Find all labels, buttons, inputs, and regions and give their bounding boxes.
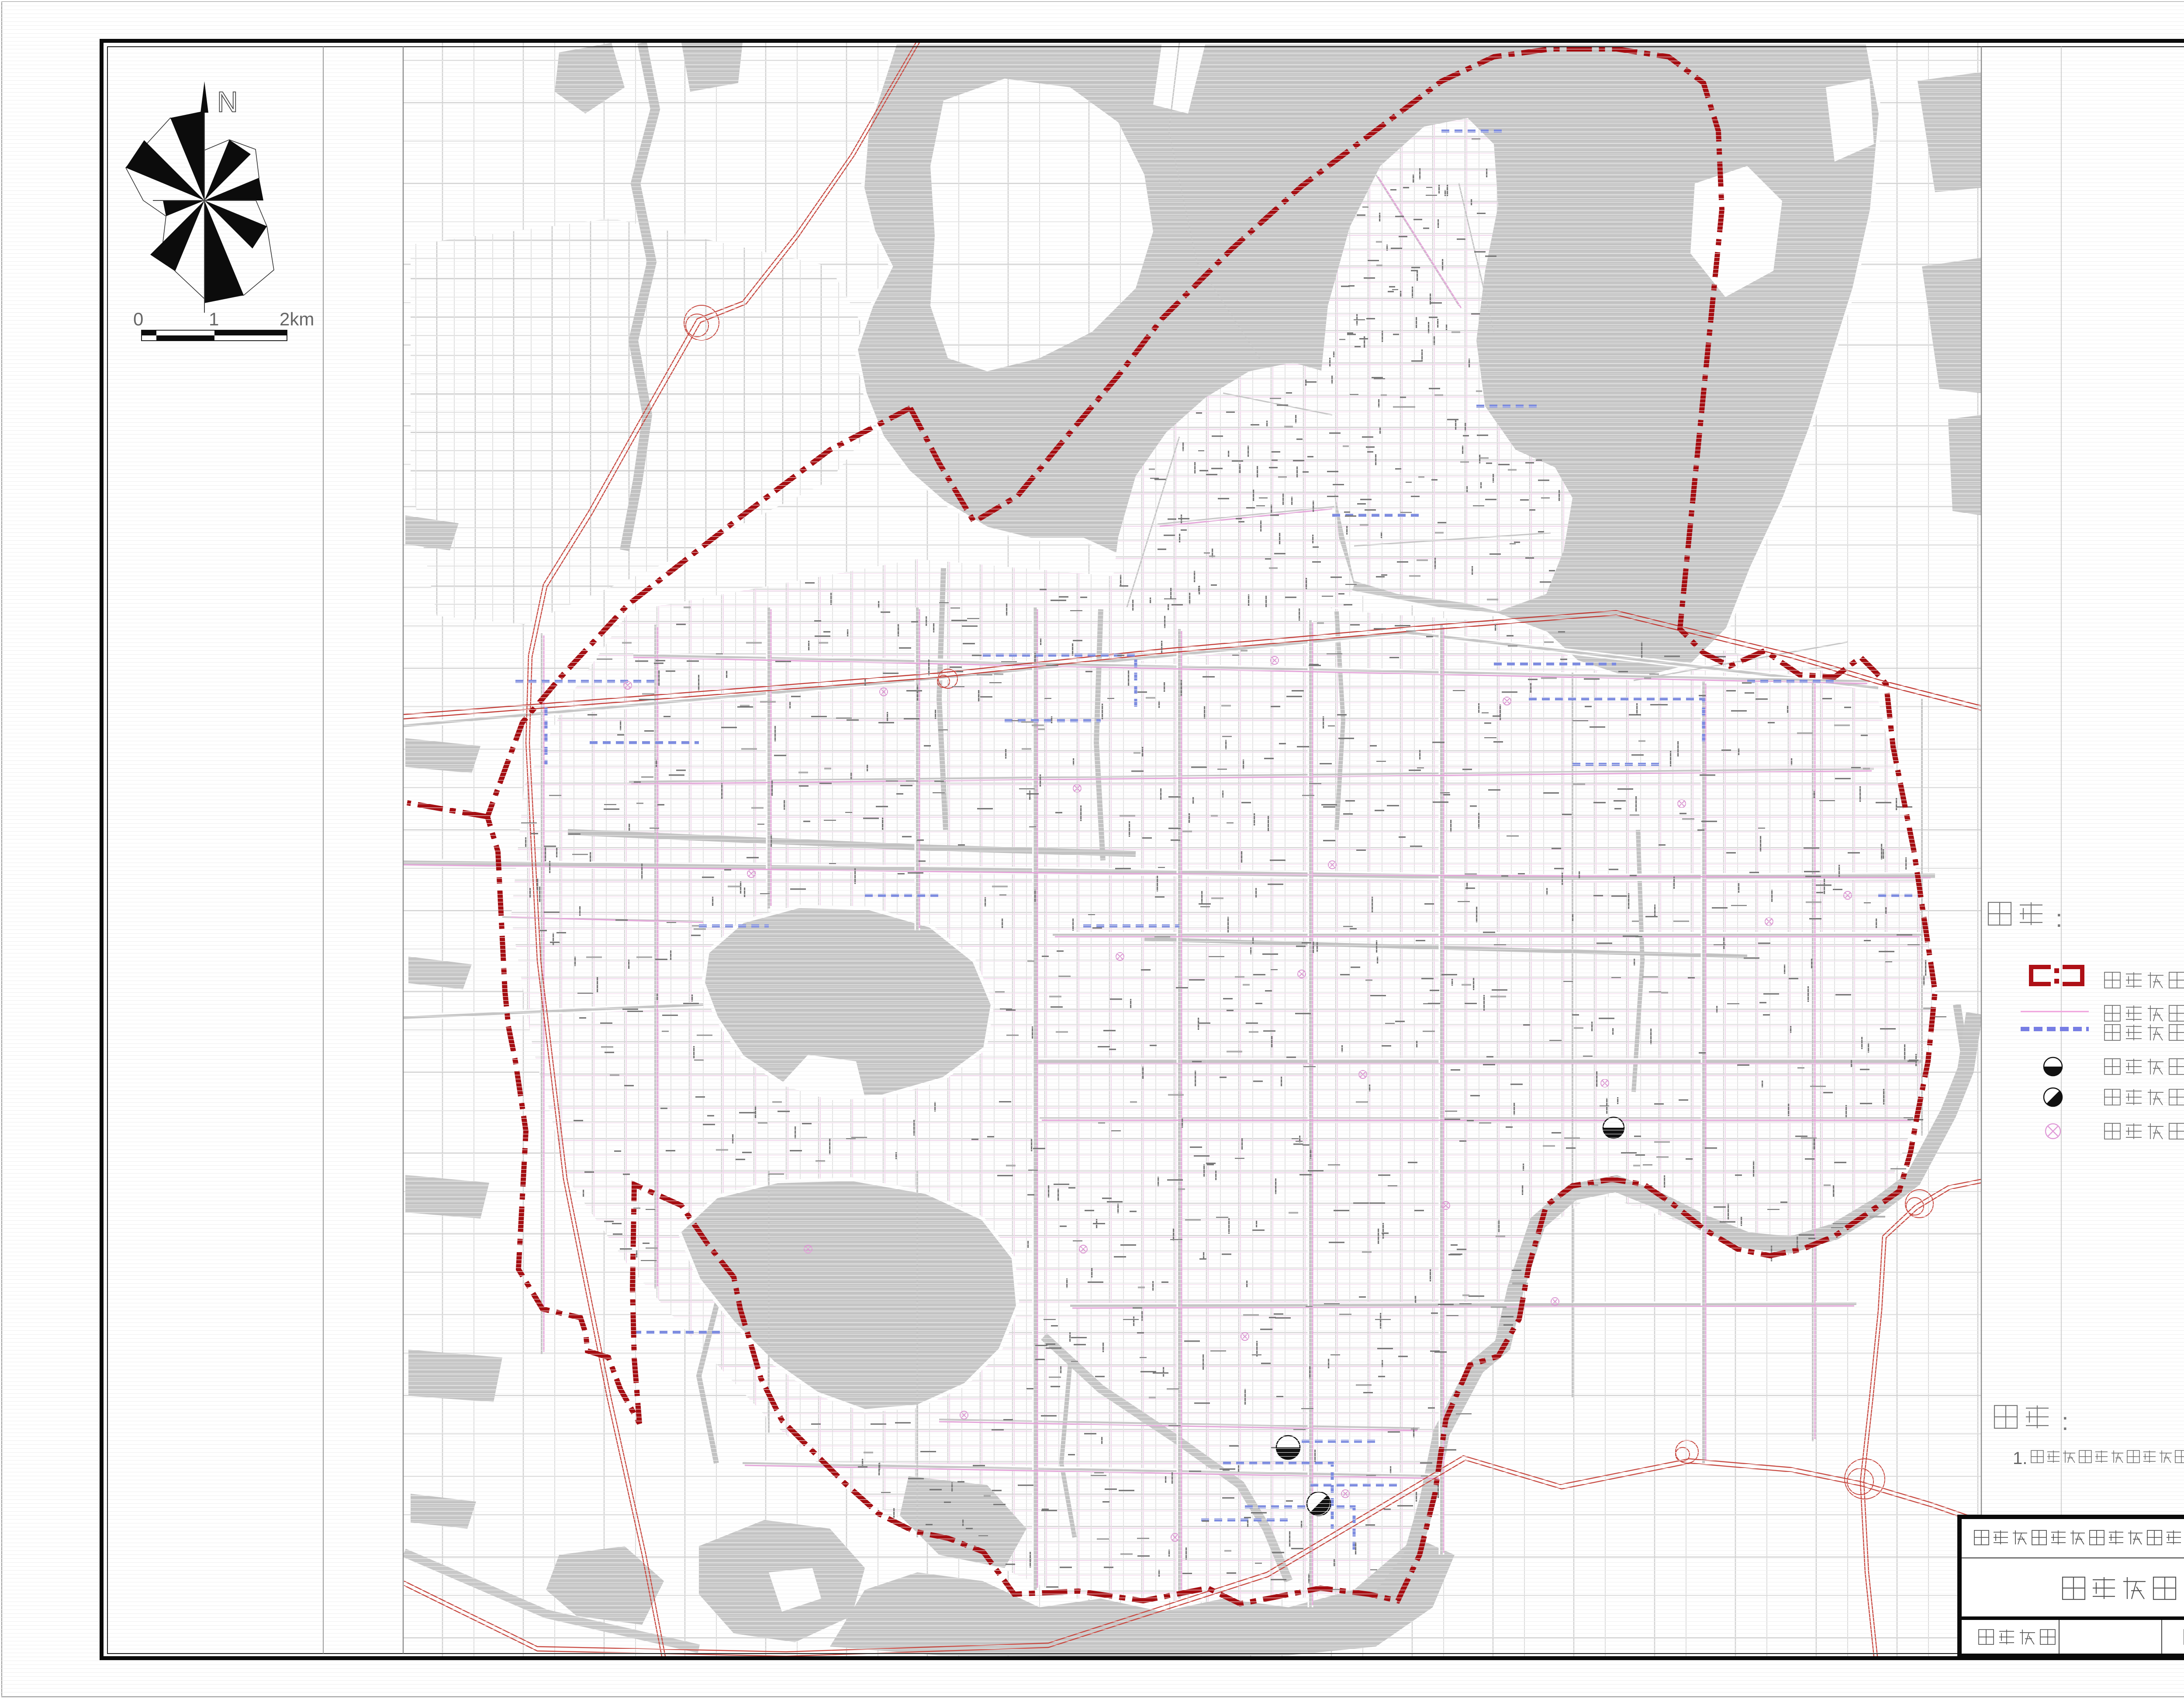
svg-text:0: 0 bbox=[133, 309, 143, 329]
svg-text::: : bbox=[2056, 905, 2063, 932]
svg-text:1.: 1. bbox=[2013, 1449, 2027, 1468]
svg-text::: : bbox=[2062, 1408, 2069, 1435]
svg-text:2km: 2km bbox=[280, 309, 314, 329]
svg-text:1: 1 bbox=[209, 309, 219, 329]
svg-text:N: N bbox=[217, 86, 238, 118]
